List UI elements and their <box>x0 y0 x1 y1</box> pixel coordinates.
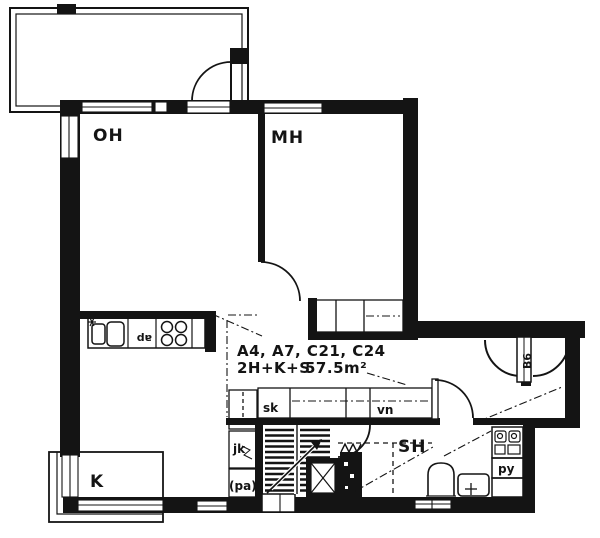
door-sh <box>432 379 473 419</box>
elevator <box>306 458 340 498</box>
door-entry: B6 <box>485 337 569 382</box>
balcony-pillar <box>230 48 248 64</box>
wall-stub-kitchen <box>205 311 216 352</box>
balcony-pillar <box>57 4 76 14</box>
wall-mh-bottom <box>308 332 418 340</box>
closet-row <box>258 388 432 418</box>
labels: OH MH K SH A4, A7, C21, C24 2H+K+S 57.5m… <box>90 126 515 493</box>
window <box>82 102 152 112</box>
door-mh <box>261 262 300 301</box>
window <box>264 103 322 113</box>
room-label-k: K <box>90 472 104 492</box>
closet-label-vn: vn <box>377 403 393 417</box>
toilet-icon <box>426 463 456 496</box>
window <box>62 455 78 497</box>
shower-bench-icon <box>458 474 489 496</box>
closet-label-sk: sk <box>263 401 279 415</box>
window <box>415 500 451 509</box>
wall-hall-top <box>410 321 585 338</box>
window <box>197 501 227 511</box>
apartment-ids: A4, A7, C21, C24 <box>237 342 386 360</box>
stove-icon <box>162 322 187 346</box>
kitchen-counter: ap <box>88 318 205 348</box>
dishwasher-label: ap <box>137 332 152 345</box>
window <box>78 500 163 511</box>
sauna-heater <box>340 444 362 498</box>
window <box>61 116 78 158</box>
room-label-mh: MH <box>271 128 304 148</box>
wall-oh-mh <box>258 113 265 262</box>
washer-space-box <box>492 478 523 497</box>
freezer-label: (pa) <box>229 479 257 493</box>
floor-plan: ap <box>0 0 600 538</box>
laundry-label: py <box>498 462 515 476</box>
stair-landing <box>262 494 295 512</box>
apartment-area: 57.5m² <box>305 359 367 377</box>
fridge-label: jk <box>232 442 246 456</box>
apartment-layout: 2H+K+S <box>237 359 311 377</box>
balcony-door-threshold <box>187 101 230 113</box>
wall-right <box>565 321 580 428</box>
balcony-door <box>192 62 231 101</box>
entry-door-label: B6 <box>521 353 534 369</box>
window <box>155 102 167 112</box>
kitchen-sink <box>88 318 124 346</box>
balcony-top <box>10 4 248 112</box>
wall-hall-sh-right <box>473 418 565 425</box>
room-label-sh: SH <box>398 437 426 457</box>
room-label-oh: OH <box>93 126 124 146</box>
floor-plan-drawing: ap <box>0 0 600 538</box>
wall-hall-sh-left <box>226 418 440 425</box>
wall-mh-right <box>403 98 418 338</box>
